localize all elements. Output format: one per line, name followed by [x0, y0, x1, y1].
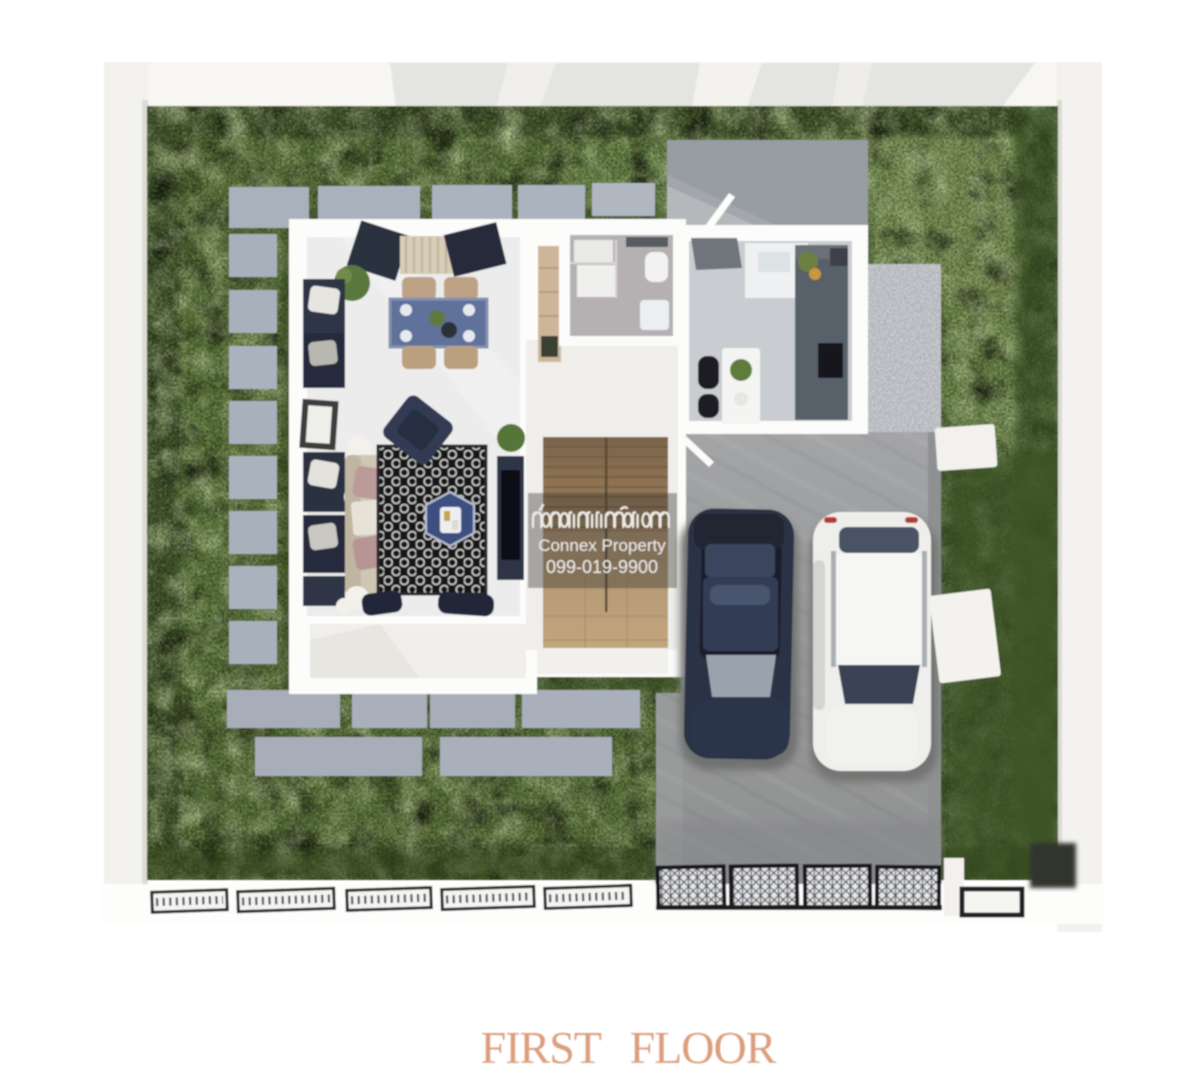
svg-text:Connex Property: Connex Property [538, 536, 666, 555]
svg-text:099-019-9900: 099-019-9900 [546, 557, 658, 577]
svg-text:FIRST FLOOR: FIRST FLOOR [481, 1022, 777, 1073]
